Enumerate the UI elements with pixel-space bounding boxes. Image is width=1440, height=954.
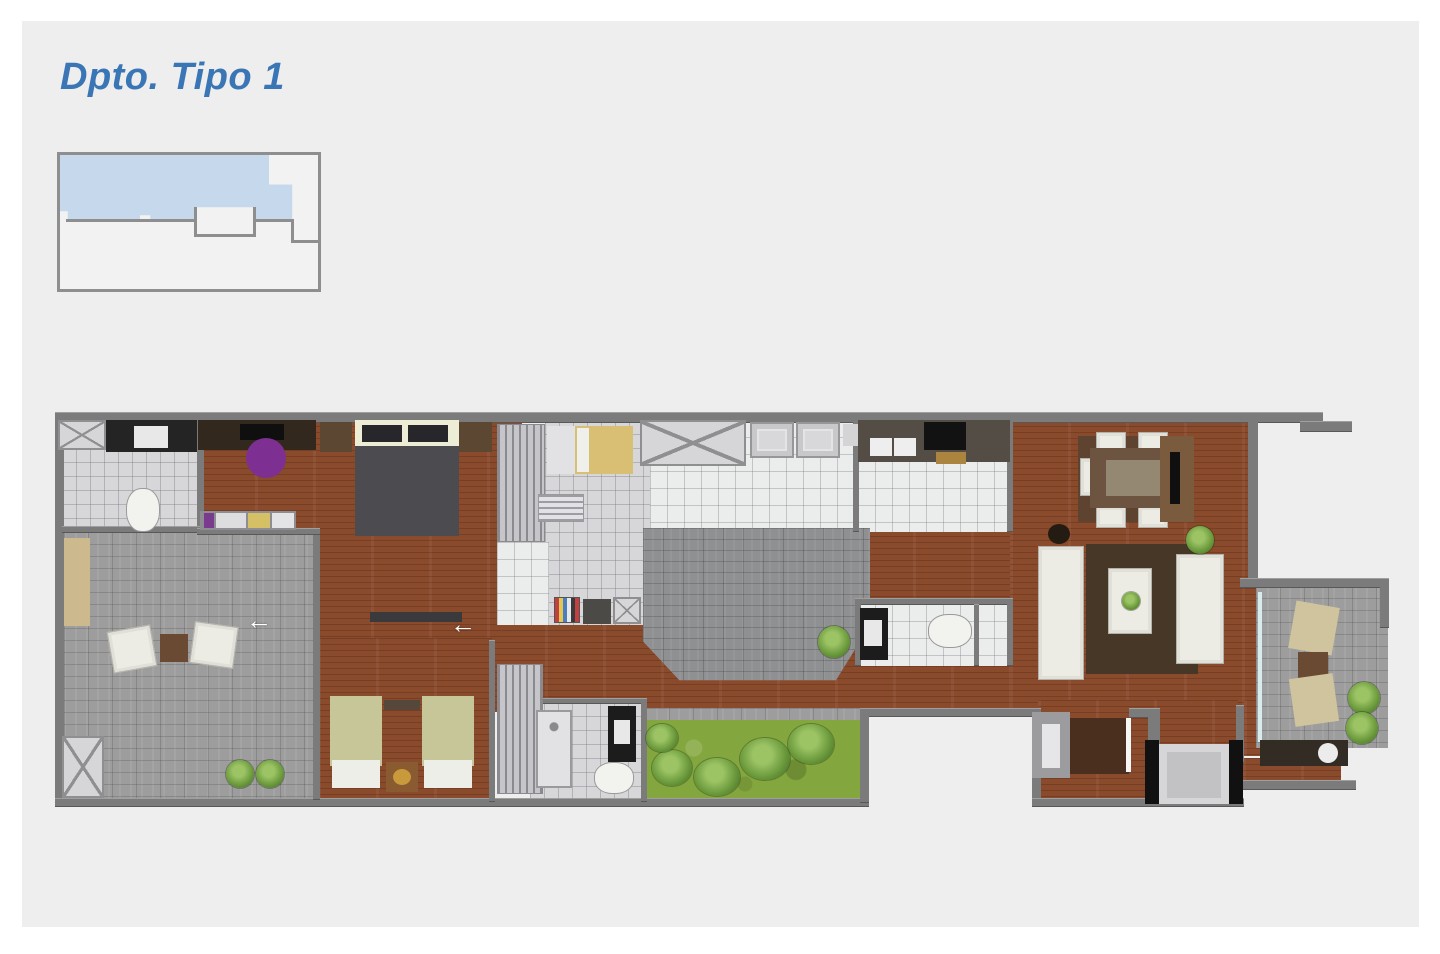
keyplan-line-right	[253, 219, 293, 222]
garden-bush-4	[788, 724, 834, 764]
bed-master-pillow-right	[408, 425, 448, 442]
terrace-chair-2	[189, 621, 238, 669]
balcony-chair-2	[1289, 673, 1339, 727]
duct-laundry	[640, 420, 746, 466]
keyplan-bump-left	[194, 207, 197, 237]
pillow-service	[577, 428, 589, 472]
dining-table-glass	[1106, 460, 1160, 496]
bed-master-pillow-left	[362, 425, 402, 442]
duct-bath1	[58, 420, 106, 450]
kitchen-sink-2	[894, 438, 916, 456]
bed2-rug-circle	[393, 769, 411, 785]
toilet-bath2	[594, 762, 634, 794]
garden-bush-5	[646, 724, 678, 752]
dresser-drawer-3	[248, 513, 270, 528]
duct-terrace	[62, 736, 104, 798]
terrace-plant-2	[256, 760, 284, 788]
balcony-plant-2	[1346, 712, 1378, 744]
terrace-table	[160, 634, 188, 662]
toilet-bath1	[126, 488, 160, 532]
chair-study	[246, 438, 286, 478]
plant-living	[1186, 526, 1214, 554]
stove	[924, 422, 966, 450]
bed2b-pillow	[424, 760, 472, 788]
washer-2	[796, 422, 840, 458]
terrace-plant-1	[226, 760, 254, 788]
washer-1	[750, 422, 794, 458]
console-suite	[370, 612, 462, 622]
garden-bush-2	[694, 758, 740, 796]
bed2a-pillow	[332, 760, 380, 788]
keyplan-bump-right	[253, 207, 256, 237]
kitchen-sink-1	[870, 438, 892, 456]
elevator-jamb-left	[1145, 740, 1159, 804]
entry-door	[1126, 718, 1131, 772]
door-arrow-1: ←	[246, 612, 310, 630]
dining-chair-s1	[1096, 506, 1126, 528]
entry-cabinet-inner	[1042, 724, 1060, 768]
kitchen-basket	[936, 452, 966, 464]
keyplan-step-h	[291, 240, 319, 243]
balcony-glass	[1258, 592, 1262, 742]
floor-plan: ←←	[0, 0, 1440, 954]
wall-bath2-top	[530, 698, 646, 704]
wall-right-upper	[1248, 412, 1258, 586]
wall-top-step	[1300, 421, 1352, 432]
shower-bath2	[536, 710, 572, 788]
rack-service	[538, 494, 584, 522]
bed2b-blanket	[422, 696, 474, 766]
sofa-left	[1038, 546, 1084, 680]
bed-master	[355, 446, 459, 536]
toilet-bath3	[928, 614, 972, 648]
elevator-jamb-right	[1229, 740, 1243, 804]
wall-bath2-right	[641, 698, 647, 802]
wall-balcony-top	[1240, 578, 1388, 588]
bed2-shelf	[384, 700, 420, 710]
terrace-chair-1	[107, 624, 158, 673]
patio-floor	[643, 528, 870, 690]
garden-bush-1	[652, 750, 692, 786]
tv	[1170, 452, 1180, 504]
wall-bottom-left	[55, 798, 869, 807]
coffee-table-plant	[1122, 592, 1140, 610]
wall-mid-vert	[860, 708, 869, 803]
wall-terrace-right	[313, 532, 320, 800]
keyplan-line-left	[66, 219, 194, 222]
sofa-right	[1176, 554, 1224, 664]
dresser-drawer-4	[272, 513, 294, 528]
sink-bath3	[864, 620, 882, 646]
utility-counter	[583, 599, 611, 624]
balcony-sink	[1318, 743, 1338, 763]
dresser-drawer-1	[204, 513, 214, 528]
wall-bath3-top	[855, 598, 1013, 605]
door-arrow-2: ←	[450, 616, 508, 634]
cabinet-service	[547, 426, 575, 474]
wall-bath3-right	[1007, 598, 1013, 666]
wall-bottom-right	[1240, 780, 1356, 790]
keyplan-bump-bottom	[194, 234, 256, 237]
balcony-plant-1	[1348, 682, 1380, 714]
cat	[1048, 524, 1070, 544]
wall-balcony-right	[1380, 578, 1389, 628]
dresser-drawer-2	[216, 513, 246, 528]
wall-mid-bottom	[860, 708, 1040, 717]
duct-laundry-small	[613, 597, 641, 624]
foyer-mat	[1065, 718, 1129, 774]
lounge-terrace	[64, 538, 90, 626]
patio-plant	[818, 626, 850, 658]
closet-master	[497, 424, 545, 542]
nightstand-right	[458, 422, 492, 452]
nightstand-left	[320, 422, 352, 452]
bath3-divider	[974, 604, 979, 666]
towel-shelf	[554, 597, 580, 623]
sink-bath1	[134, 426, 168, 448]
wall-bed2-right	[489, 640, 495, 802]
laundry-floor-2	[497, 542, 549, 625]
balcony-chair-1	[1288, 601, 1340, 656]
sink-bath2	[614, 720, 630, 744]
garden-bush-3	[740, 738, 790, 780]
bed2a-blanket	[330, 696, 382, 766]
elevator-cab-inner	[1167, 752, 1221, 798]
